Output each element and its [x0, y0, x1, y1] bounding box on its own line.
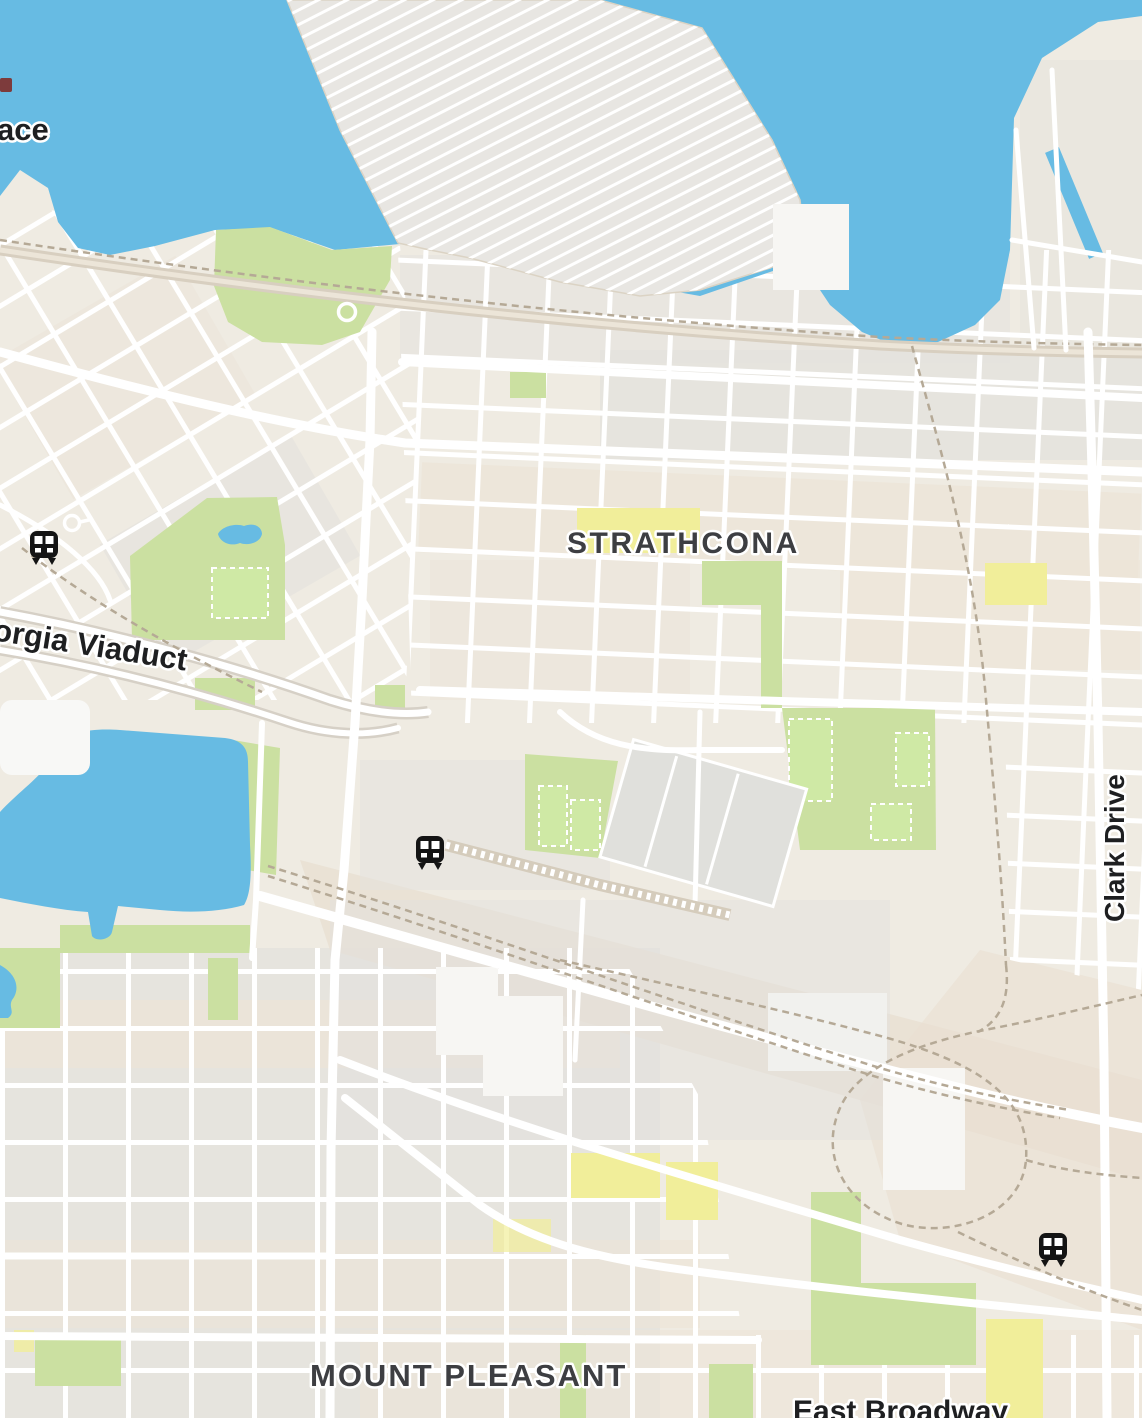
- clark-drive-label: Clark Drive: [1099, 774, 1130, 922]
- poi-marker-fragment: [0, 78, 12, 92]
- strathcona-label: STRATHCONA: [567, 527, 800, 560]
- mount-pleasant-label: MOUNT PLEASANT: [310, 1358, 627, 1393]
- canada-place-label: ace: [0, 112, 49, 147]
- map-canvas[interactable]: ace STRATHCONA orgia Viaduct Clark Drive…: [0, 0, 1142, 1418]
- map-viewport[interactable]: ace STRATHCONA orgia Viaduct Clark Drive…: [0, 0, 1142, 1418]
- east-broadway-label: East Broadway: [793, 1395, 1008, 1418]
- pier-building: [773, 204, 849, 290]
